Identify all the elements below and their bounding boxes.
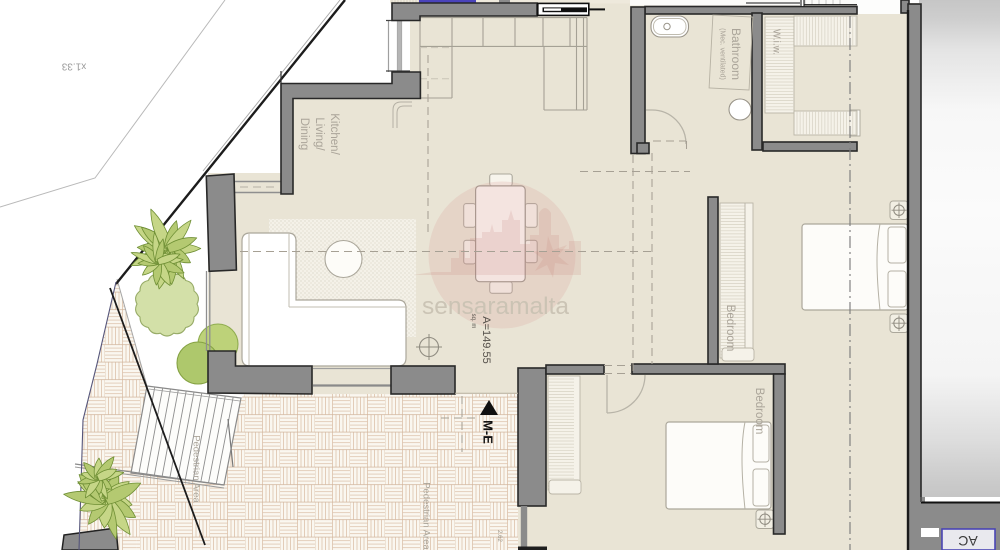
svg-text:AC: AC xyxy=(958,533,977,549)
svg-text:Bedroom: Bedroom xyxy=(753,388,765,435)
svg-text:x1.33: x1.33 xyxy=(61,61,86,72)
svg-text:Dining: Dining xyxy=(298,118,310,151)
svg-text:sensaramalta: sensaramalta xyxy=(422,293,569,320)
svg-text:Living/: Living/ xyxy=(313,117,325,151)
svg-text:Pedestrian Area: Pedestrian Area xyxy=(191,435,202,503)
svg-text:2.62: 2.62 xyxy=(496,530,502,542)
svg-text:W.i.w.: W.i.w. xyxy=(771,29,782,55)
svg-text:Pedestrian Area: Pedestrian Area xyxy=(421,482,432,550)
svg-text:sq. m: sq. m xyxy=(470,314,476,329)
svg-text:Kitchen/: Kitchen/ xyxy=(328,113,340,155)
svg-text:Bathroom: Bathroom xyxy=(729,28,743,80)
svg-text:Bedroom: Bedroom xyxy=(724,305,736,352)
svg-text:(Mec. ventilated): (Mec. ventilated) xyxy=(719,28,726,80)
svg-text:M-E: M-E xyxy=(481,420,496,444)
svg-text:A=149.55: A=149.55 xyxy=(480,316,492,363)
